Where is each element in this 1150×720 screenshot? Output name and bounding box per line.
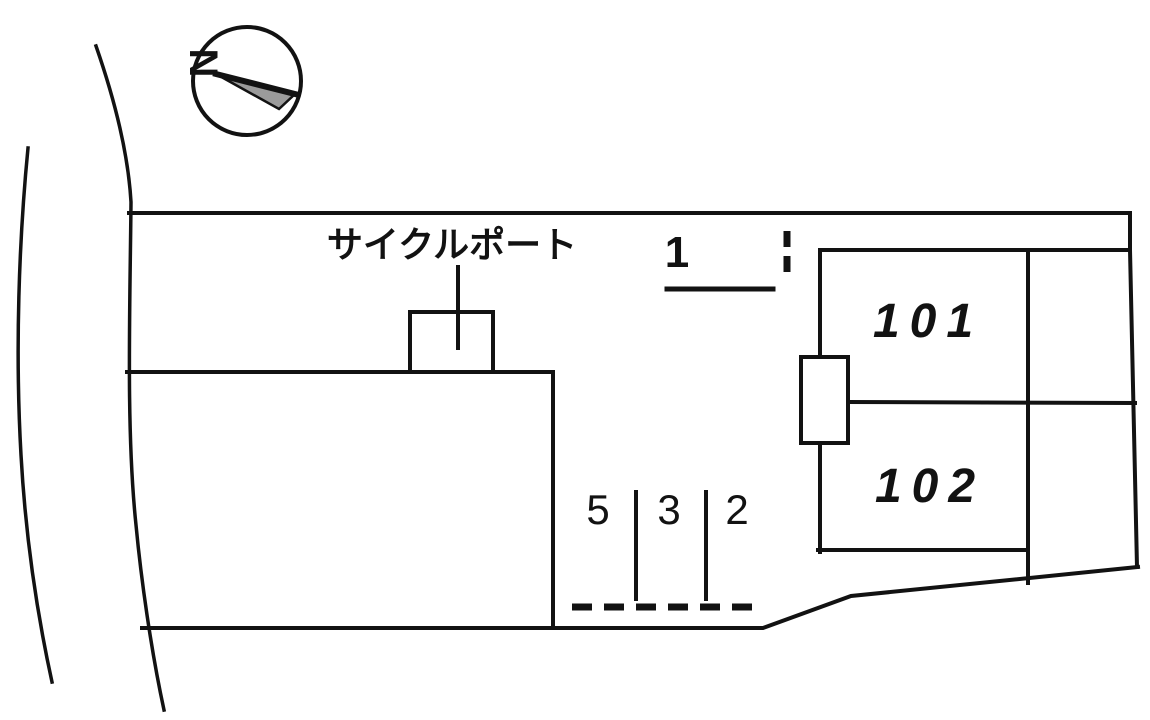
left-plot-outline [127,372,553,628]
unit-101-label: 101 [873,295,983,348]
site-plan-drawing: N サイクルポート 1 5 3 2 101 102 [0,0,1150,720]
parking-space-5-label: 5 [586,486,609,533]
cycle-port-box [410,312,493,372]
site-plan-canvas: N サイクルポート 1 5 3 2 101 102 [0,0,1150,720]
inner-boundary-curve [96,46,164,710]
cycle-port-label: サイクルポート [327,224,577,265]
building-right-wall [1130,213,1137,567]
outer-boundary-curve [18,148,52,682]
compass-north-letter: N [181,49,225,78]
entrance-porch-box [801,357,848,443]
north-compass: N [181,27,301,135]
site-bottom-boundary-line [142,567,1138,628]
parking-space-3-label: 3 [657,486,680,533]
parking-space-2-label: 2 [725,486,748,533]
unit-102-label: 102 [875,460,985,513]
unit-101-102-divider [848,402,1135,403]
parking-space-1-label: 1 [665,228,689,277]
